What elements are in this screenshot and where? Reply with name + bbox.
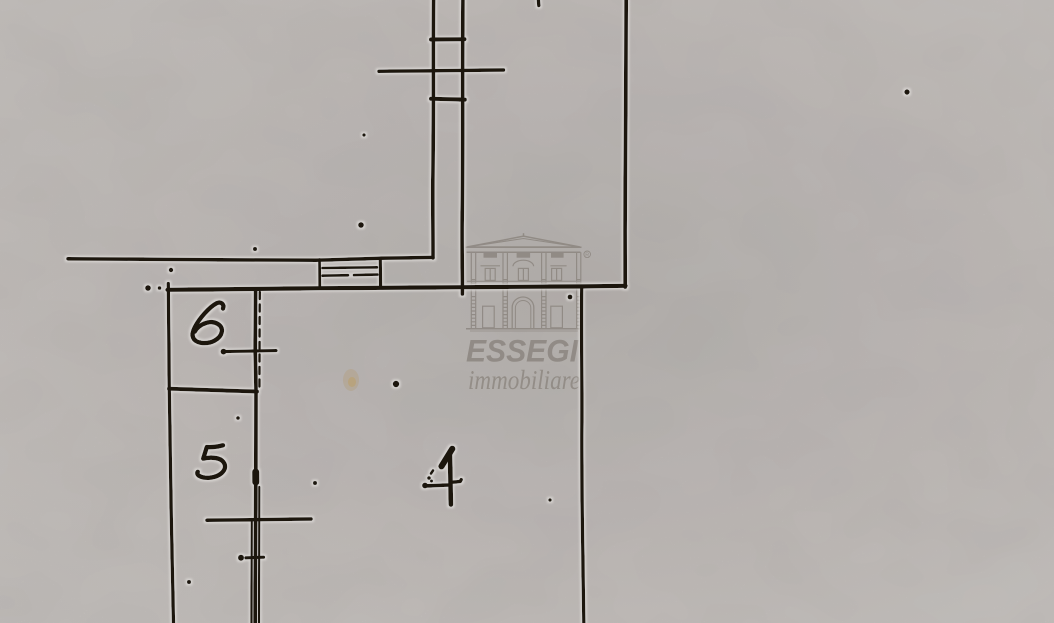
svg-text:ESSEGI: ESSEGI [466,333,579,369]
svg-text:R: R [585,253,589,259]
svg-text:immobiliare: immobiliare [468,365,580,395]
